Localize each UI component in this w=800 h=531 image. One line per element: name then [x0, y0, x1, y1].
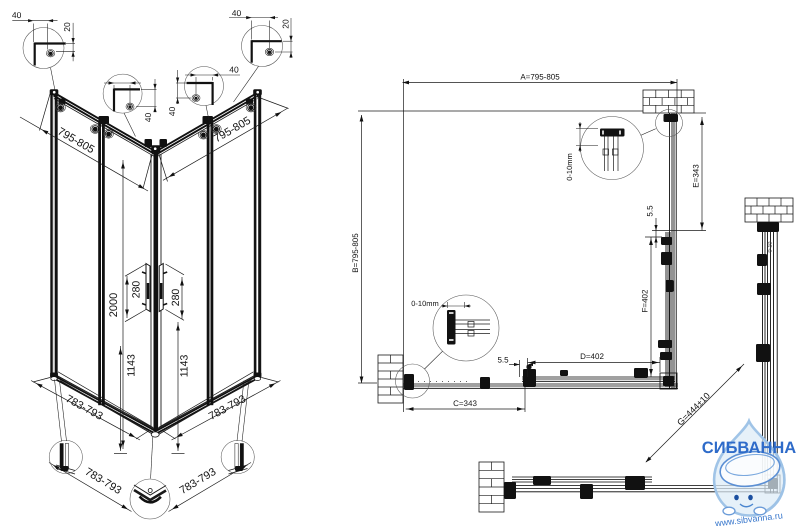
svg-text:E=343: E=343	[692, 164, 701, 188]
svg-text:C=343: C=343	[453, 399, 477, 408]
svg-text:СИБВАННА: СИБВАННА	[702, 439, 796, 457]
svg-text:D=402: D=402	[580, 352, 604, 361]
svg-text:B=795-805: B=795-805	[351, 233, 360, 273]
svg-text:20: 20	[280, 19, 290, 29]
svg-text:20: 20	[62, 22, 72, 32]
svg-text:40: 40	[232, 8, 242, 18]
svg-text:1143: 1143	[178, 355, 190, 378]
svg-text:F=402: F=402	[641, 289, 650, 312]
svg-text:280: 280	[130, 281, 142, 299]
svg-text:280: 280	[170, 289, 182, 307]
svg-text:40: 40	[229, 64, 239, 74]
svg-text:5.5: 5.5	[646, 205, 655, 217]
svg-text:0-10mm: 0-10mm	[565, 153, 574, 181]
svg-text:40: 40	[167, 107, 177, 117]
svg-text:0-10mm: 0-10mm	[411, 299, 439, 308]
svg-text:5.5: 5.5	[497, 356, 509, 365]
svg-text:2000: 2000	[108, 293, 120, 317]
svg-text:A=795-805: A=795-805	[520, 73, 560, 82]
svg-text:40: 40	[143, 113, 153, 123]
svg-text:0-10: 0-10	[767, 241, 773, 252]
svg-text:1143: 1143	[125, 354, 137, 377]
svg-text:40: 40	[12, 10, 22, 20]
